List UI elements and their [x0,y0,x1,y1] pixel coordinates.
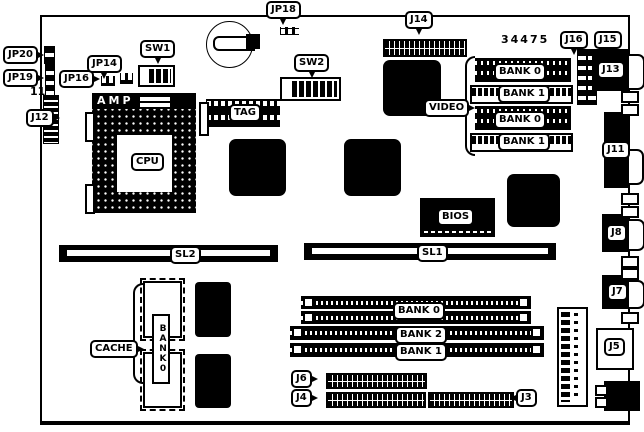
jumper-jp14 [120,73,133,84]
callout-j12: J12 [26,109,54,127]
chip-qfp [507,174,560,227]
bios-pins [424,231,491,233]
callout-j14: J14 [405,11,433,29]
memory-bank-label: BANK 2 [395,326,447,344]
connector-j7-port [627,280,644,309]
callout-sw1: SW1 [140,40,175,58]
power-connector [557,307,588,407]
chip-qfp [229,139,286,196]
video-bank-label: BANK 1 [498,133,550,151]
edge-tab [621,206,639,218]
sl2-label: SL2 [170,246,201,264]
cache-bank-label: BANK0 [152,314,170,384]
tag-label: TAG [229,104,261,122]
dip-switch-sw1 [138,65,175,87]
chip-qfp [344,139,401,196]
connector-j8-port [627,219,644,251]
corner-connector [604,381,640,411]
callout-j16: J16 [560,31,588,49]
sl1-label: SL1 [417,244,448,262]
bios-label: BIOS [437,208,474,226]
edge-tab [621,256,639,268]
edge-tab [595,397,608,408]
video-bank-label: BANK 0 [494,63,546,81]
callout-video: VIDEO [424,99,469,117]
callout-j7: J7 [607,283,628,301]
motherboard-diagram: JP20 JP19 11 J12 JP16 JP14 SW1 JP18 SW2 … [0,0,644,432]
edge-tab [621,312,639,324]
connector-j4 [326,392,426,408]
connector-j6 [326,373,427,389]
edge-tab [621,193,639,205]
callout-jp18: JP18 [266,1,301,19]
slot-sl2 [59,245,278,262]
amp-logo [139,96,171,108]
edge-tab [595,385,608,396]
callout-cache: CACHE [90,340,138,358]
callout-jp16: JP16 [59,70,94,88]
edge-tab [621,104,639,116]
callout-j11: J11 [602,141,630,159]
memory-bank-label: BANK 0 [393,302,445,320]
connector-j14 [383,39,467,57]
connector-j3 [428,392,514,408]
callout-j13: J13 [597,61,625,79]
callout-j5: J5 [604,338,625,356]
callout-sw2: SW2 [294,54,329,72]
callout-j6: J6 [291,370,312,388]
cache-bracket [133,283,143,384]
callout-jp14: JP14 [87,55,122,73]
battery-clip-end [246,34,260,49]
socket-latch [85,184,95,214]
callout-jp19: JP19 [3,69,38,87]
video-bank-label: BANK 0 [494,111,546,129]
part-number: 34475 [501,33,549,46]
callout-j8: J8 [606,224,627,242]
edge-tab [621,268,639,280]
cache-chip [195,282,231,337]
cache-chip [195,354,231,408]
callout-j4: J4 [291,389,312,407]
socket-latch [85,112,95,142]
connector-j13-port [627,54,644,90]
header-j16 [577,49,587,105]
edge-tab [621,91,639,103]
small-component [199,102,209,136]
memory-bank-label: BANK 1 [395,343,447,361]
video-bank-label: BANK 1 [498,85,550,103]
callout-jp20: JP20 [3,46,38,64]
callout-j15: J15 [594,31,622,49]
amp-label: AMP [97,94,134,107]
cpu-label: CPU [131,153,164,171]
callout-j3: J3 [516,389,537,407]
